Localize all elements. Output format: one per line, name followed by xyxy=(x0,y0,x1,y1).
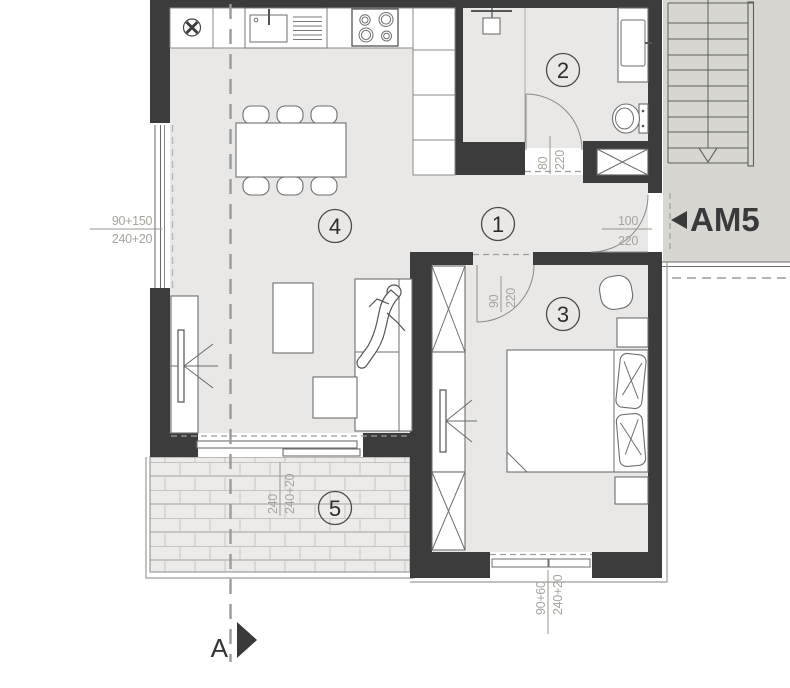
sofa-chaise xyxy=(313,377,357,418)
svg-text:220: 220 xyxy=(553,150,567,170)
unit-name: AM5 xyxy=(690,201,760,238)
svg-text:240+20: 240+20 xyxy=(112,232,153,246)
left-window xyxy=(150,123,173,288)
svg-text:1: 1 xyxy=(492,212,504,237)
coffee-table xyxy=(273,283,313,353)
dining-table xyxy=(236,123,346,177)
pillow-2 xyxy=(616,413,646,467)
svg-text:90+60: 90+60 xyxy=(534,581,548,615)
svg-text:90: 90 xyxy=(487,294,501,308)
floor-plan-drawing: A AM5 1 2 3 4 5 90+150 240+2 xyxy=(0,0,790,688)
wall-right-upper xyxy=(648,0,662,193)
double-bed xyxy=(507,350,648,472)
svg-text:240: 240 xyxy=(266,494,280,514)
sliding-door-panel-2 xyxy=(283,449,360,456)
svg-text:80: 80 xyxy=(536,156,550,170)
wardrobe-upper xyxy=(432,266,465,352)
bedroom-tv-cabinet xyxy=(432,352,465,472)
wall-bedroom-left xyxy=(410,252,432,578)
floor-plan-canvas: A AM5 1 2 3 4 5 90+150 240+2 xyxy=(0,0,790,688)
stove-cooktop xyxy=(352,9,398,46)
wall-kitchen-bath xyxy=(455,8,463,148)
nightstand-lower xyxy=(615,477,648,504)
svg-text:100: 100 xyxy=(618,214,638,228)
wall-bedroom-bottom-right xyxy=(592,552,662,578)
wall-right-lower xyxy=(648,252,662,578)
wall-hall-bedroom-right xyxy=(533,252,648,265)
svg-text:90+150: 90+150 xyxy=(112,214,153,228)
section-arrow-icon xyxy=(237,622,257,658)
svg-text:5: 5 xyxy=(329,496,341,521)
dim-bedroom-window: 90+60 240+20 xyxy=(534,570,565,634)
wall-left-upper xyxy=(150,0,170,125)
svg-text:240+20: 240+20 xyxy=(283,473,297,514)
wall-bedroom-bottom-left xyxy=(432,552,490,578)
dining-set xyxy=(236,106,346,195)
cooker-hood-fan-icon xyxy=(184,19,201,36)
svg-text:240+20: 240+20 xyxy=(551,574,565,615)
svg-text:220: 220 xyxy=(504,288,518,308)
kitchen-tall-units xyxy=(413,8,455,175)
wall-top xyxy=(150,0,662,8)
pillow-1 xyxy=(615,353,647,409)
wall-bath-bottom-left xyxy=(455,142,525,175)
svg-text:2: 2 xyxy=(557,58,569,83)
wall-hall-bedroom-left xyxy=(432,252,473,265)
kitchen-sink xyxy=(245,8,327,48)
wardrobe-lower xyxy=(432,472,465,550)
washbasin xyxy=(618,8,652,82)
corridor-boundary xyxy=(662,262,790,278)
entry-door-niche xyxy=(648,193,662,252)
section-letter: A xyxy=(211,633,229,663)
wall-bath-bottom-mid xyxy=(583,141,597,183)
wall-left-lower xyxy=(150,288,170,457)
bedroom-window xyxy=(490,552,592,578)
svg-text:220: 220 xyxy=(618,234,638,248)
svg-text:4: 4 xyxy=(329,214,341,239)
installation-shaft xyxy=(597,149,648,175)
toilet xyxy=(613,104,649,133)
nightstand-upper xyxy=(617,318,648,347)
sliding-door-panel-1 xyxy=(197,441,357,448)
svg-text:3: 3 xyxy=(557,302,569,327)
bedroom-window-niche xyxy=(490,552,592,578)
